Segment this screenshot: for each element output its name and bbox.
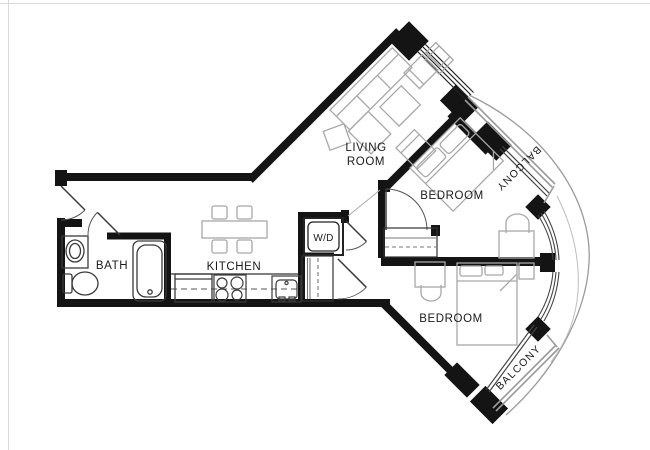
washer-dryer-door [346, 221, 367, 250]
lounge-chair [396, 130, 436, 170]
bath-label: BATH [96, 260, 128, 272]
dining-chairs [212, 206, 252, 253]
bath-door [88, 212, 120, 235]
entry-door [61, 186, 85, 220]
bedroom-lower-label: BEDROOM [419, 313, 483, 325]
curved-window-lower [538, 272, 559, 321]
toilet [63, 272, 98, 295]
dining-table [202, 221, 267, 238]
bedroom-upper-label: BEDROOM [420, 190, 484, 202]
linen-closet [302, 256, 333, 301]
floor-plan-page: BATH KITCHEN W/D LIVING ROOM BEDROOM BED… [0, 0, 650, 450]
bathtub [133, 241, 166, 301]
bath-vanity-sink [62, 236, 88, 268]
kitchen-label: KITCHEN [207, 261, 262, 273]
washer-dryer-label: W/D [313, 233, 333, 244]
refrigerator [175, 274, 212, 302]
hall-threshold [348, 190, 380, 216]
curved-window-upper [538, 211, 559, 260]
living-room-label-line1: LIVING [345, 142, 386, 154]
page-border [0, 0, 650, 450]
desk-upper [499, 231, 534, 258]
living-room-label-line2: ROOM [347, 156, 385, 168]
coffee-table [380, 86, 420, 126]
floor-plan-drawing: BATH KITCHEN W/D LIVING ROOM BEDROOM BED… [0, 0, 650, 450]
bedroom-lower-door [338, 259, 366, 299]
desk-chair-upper [506, 214, 529, 233]
side-table [425, 46, 453, 74]
bedroom-upper-closet [384, 228, 437, 257]
bed-lower [457, 263, 517, 345]
balcony-lower-label: BALCONY [494, 343, 544, 393]
